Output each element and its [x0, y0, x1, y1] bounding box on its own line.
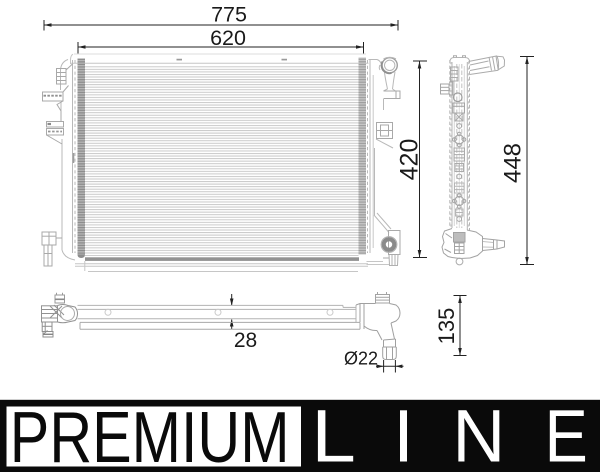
svg-text:Ø22: Ø22 — [344, 349, 378, 369]
svg-text:775: 775 — [211, 3, 247, 27]
svg-text:135: 135 — [434, 308, 459, 345]
svg-text:448: 448 — [500, 143, 527, 183]
svg-text:E: E — [545, 395, 588, 472]
svg-text:620: 620 — [210, 26, 246, 50]
svg-text:PREMIUM: PREMIUM — [10, 396, 290, 472]
svg-text:420: 420 — [396, 139, 424, 181]
svg-text:L: L — [311, 395, 355, 472]
svg-text:N: N — [452, 394, 505, 472]
svg-text:28: 28 — [234, 329, 257, 352]
